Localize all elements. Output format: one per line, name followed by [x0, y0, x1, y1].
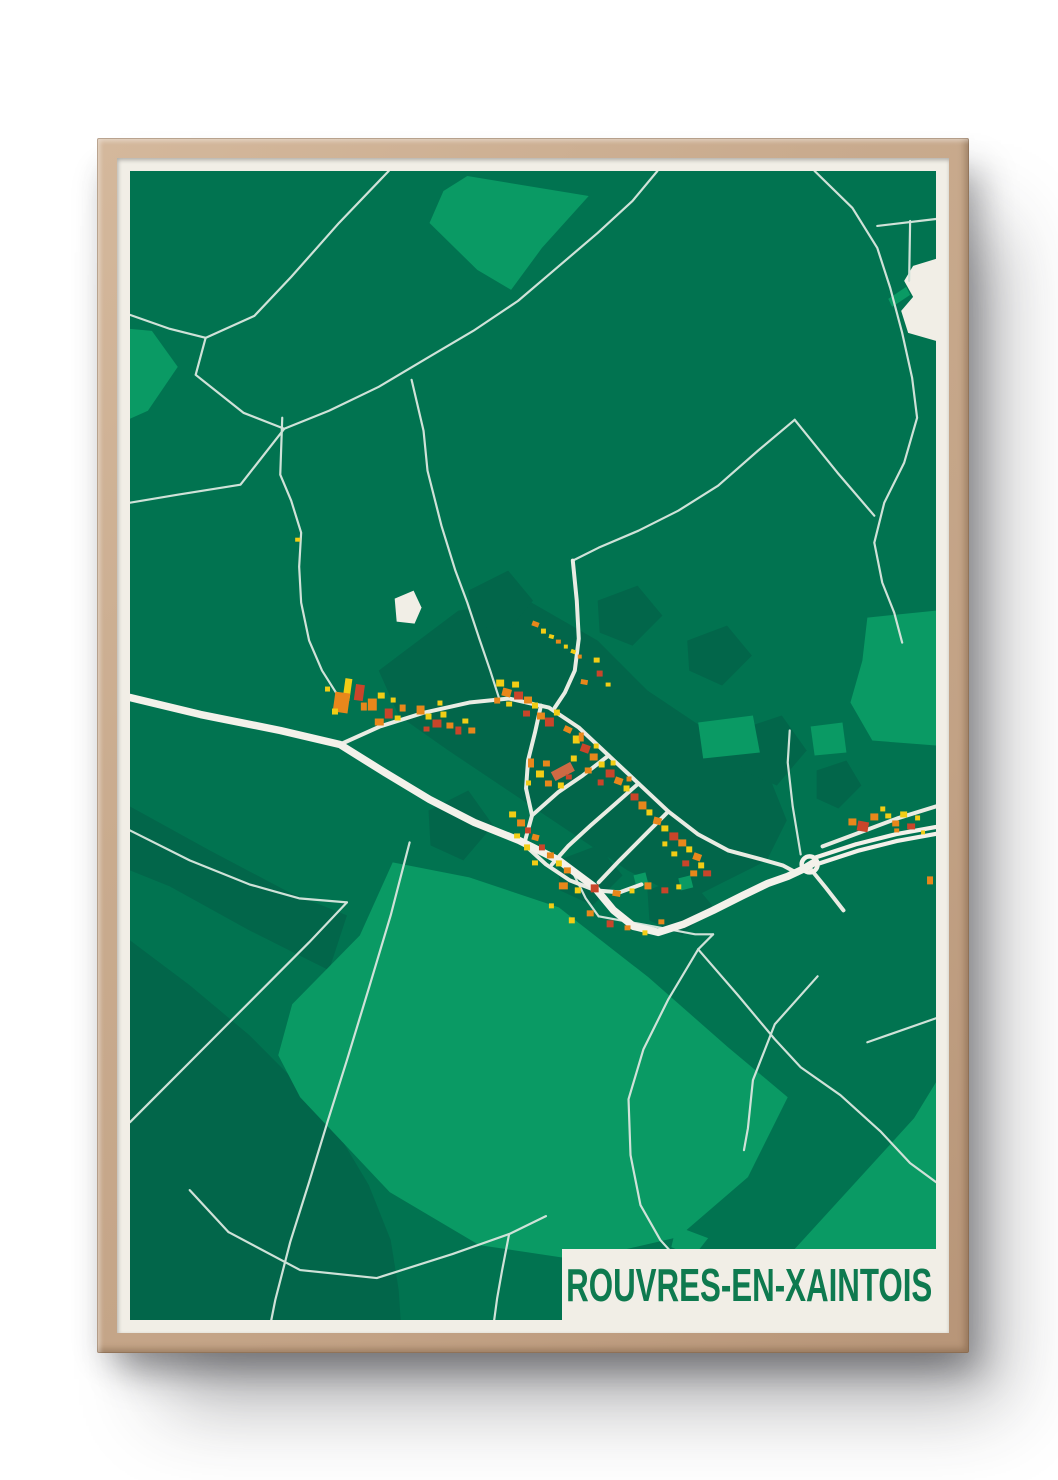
poster-frame: ROUVRES-EN-XAINTOIS [97, 138, 969, 1353]
building [892, 820, 899, 826]
building [361, 703, 367, 711]
building [585, 767, 592, 773]
building [678, 839, 686, 846]
building [848, 818, 856, 825]
building [545, 780, 552, 786]
building [625, 925, 631, 930]
building [638, 801, 646, 809]
building [543, 760, 550, 766]
building [424, 727, 430, 732]
building [644, 882, 651, 889]
building [900, 811, 907, 817]
product-photo-scene: ROUVRES-EN-XAINTOIS [0, 0, 1058, 1480]
building [547, 852, 554, 858]
building [857, 821, 870, 833]
building [537, 713, 545, 720]
building [514, 692, 523, 700]
building [541, 629, 546, 634]
building [391, 698, 396, 703]
building [597, 671, 603, 677]
building [921, 830, 925, 834]
building [885, 813, 891, 818]
title-band: ROUVRES-EN-XAINTOIS [562, 1249, 936, 1320]
building [669, 832, 678, 840]
building [661, 887, 668, 893]
building [368, 699, 377, 711]
building [611, 760, 616, 765]
building [558, 782, 564, 788]
field-patch [698, 716, 760, 759]
building [698, 862, 704, 868]
building [549, 903, 554, 908]
building [525, 827, 531, 833]
minor-road [909, 221, 910, 281]
building [590, 753, 598, 760]
building [526, 780, 531, 785]
building [676, 884, 681, 889]
building [455, 727, 461, 735]
building [661, 825, 668, 831]
building [870, 813, 878, 820]
building [642, 930, 647, 935]
field-patch [811, 723, 847, 756]
building [378, 693, 385, 699]
building [627, 776, 632, 781]
building [400, 705, 406, 712]
building [332, 709, 338, 715]
building [671, 851, 677, 856]
building [556, 860, 562, 866]
building [624, 785, 630, 791]
building [532, 703, 538, 709]
building [594, 744, 599, 749]
building [440, 712, 446, 718]
building [591, 884, 599, 892]
building [880, 806, 885, 811]
building [907, 823, 915, 829]
building [686, 846, 692, 852]
building [417, 706, 425, 715]
building [566, 774, 572, 779]
building [539, 844, 545, 850]
building [598, 779, 604, 785]
building [462, 719, 468, 724]
building [437, 701, 442, 706]
building [559, 882, 568, 889]
building [575, 887, 581, 893]
building [496, 680, 504, 687]
building [426, 714, 432, 720]
map-canvas [130, 171, 936, 1320]
building [517, 819, 525, 826]
building [325, 687, 330, 692]
building [579, 733, 584, 742]
building [662, 841, 667, 846]
city-map-artwork: ROUVRES-EN-XAINTOIS [130, 171, 936, 1320]
building [606, 769, 615, 777]
building [532, 860, 538, 865]
building [524, 844, 530, 850]
building [631, 793, 639, 800]
building [512, 682, 519, 688]
building [536, 770, 544, 777]
building [385, 709, 393, 719]
building [514, 833, 520, 838]
building [594, 658, 600, 663]
building [523, 711, 530, 717]
building [630, 888, 635, 893]
building [606, 683, 611, 687]
building [682, 860, 689, 866]
building [599, 761, 605, 767]
poster-title: ROUVRES-EN-XAINTOIS [566, 1258, 932, 1312]
building [395, 716, 401, 721]
building [607, 920, 614, 927]
building [468, 728, 475, 734]
building [524, 697, 532, 704]
building [564, 867, 571, 873]
building [494, 698, 500, 704]
building [927, 876, 933, 884]
building [545, 718, 554, 727]
building [915, 815, 920, 820]
building [556, 640, 561, 644]
building [571, 755, 577, 761]
building [509, 811, 516, 817]
building [295, 538, 300, 542]
building [573, 736, 580, 744]
poster-mat: ROUVRES-EN-XAINTOIS [117, 158, 949, 1333]
building [446, 723, 453, 729]
building [432, 720, 441, 728]
building [554, 710, 560, 716]
building [569, 917, 575, 923]
building [528, 758, 534, 767]
building [578, 655, 582, 659]
building [506, 702, 512, 707]
building [894, 828, 899, 832]
building [690, 870, 697, 876]
building [658, 919, 664, 924]
building [646, 809, 652, 815]
building [564, 645, 568, 649]
building [375, 719, 384, 726]
building [587, 910, 594, 916]
building [703, 870, 711, 876]
